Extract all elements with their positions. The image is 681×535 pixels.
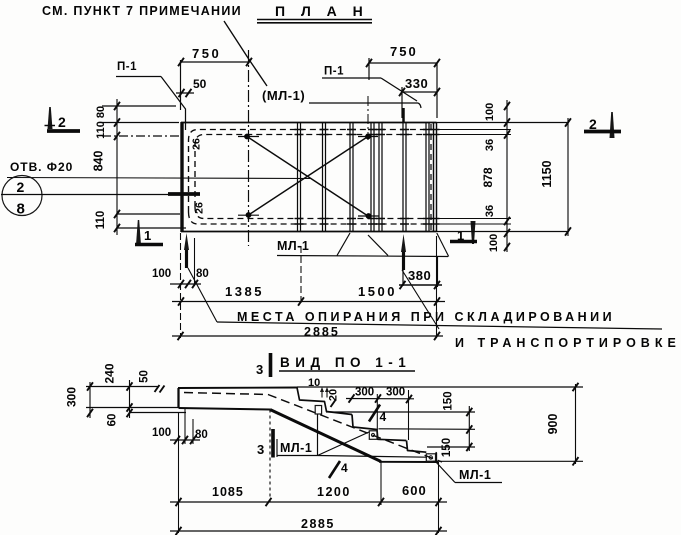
svg-text:4: 4 [380, 410, 387, 424]
svg-text:МЕСТА ОПИРАНИЯ ПРИ СКЛАДИРОВАН: МЕСТА ОПИРАНИЯ ПРИ СКЛАДИРОВАНИИ [237, 310, 615, 324]
svg-text:1: 1 [457, 228, 464, 243]
svg-text:1085: 1085 [212, 485, 244, 499]
svg-text:1500: 1500 [358, 284, 397, 299]
svg-text:1200: 1200 [317, 485, 351, 499]
svg-text:И ТРАНСПОРТИРОВКЕ: И ТРАНСПОРТИРОВКЕ [455, 336, 681, 350]
svg-text:(МЛ-1): (МЛ-1) [262, 88, 305, 103]
svg-text:26: 26 [194, 202, 206, 214]
svg-text:100: 100 [152, 268, 171, 280]
svg-text:600: 600 [402, 483, 427, 498]
svg-text:300: 300 [386, 387, 405, 399]
svg-text:150: 150 [443, 391, 455, 410]
svg-text:3: 3 [256, 362, 263, 377]
svg-text:20: 20 [328, 389, 340, 401]
svg-text:300: 300 [355, 387, 374, 399]
svg-text:1150: 1150 [540, 160, 554, 187]
svg-text:60: 60 [107, 414, 119, 427]
svg-text:МЛ-1: МЛ-1 [459, 468, 491, 482]
svg-text:36: 36 [484, 205, 496, 217]
svg-text:300: 300 [65, 387, 79, 407]
svg-text:840: 840 [92, 151, 106, 172]
svg-text:330: 330 [405, 76, 428, 91]
svg-text:П Л А Н: П Л А Н [275, 3, 369, 19]
svg-text:80: 80 [95, 106, 107, 118]
svg-text:ОТВ. Ф20: ОТВ. Ф20 [10, 160, 73, 174]
svg-text:2: 2 [58, 114, 66, 130]
svg-text:2885: 2885 [301, 517, 335, 531]
svg-text:СМ. ПУНКТ 7 ПРИМЕЧАНИИ: СМ. ПУНКТ 7 ПРИМЕЧАНИИ [42, 4, 242, 18]
svg-text:750: 750 [192, 46, 221, 61]
svg-text:110: 110 [95, 121, 107, 139]
svg-text:36: 36 [484, 139, 496, 151]
svg-text:240: 240 [103, 363, 117, 383]
svg-text:380: 380 [408, 268, 431, 283]
svg-text:2: 2 [17, 179, 25, 195]
svg-text:1385: 1385 [225, 284, 264, 299]
svg-text:1: 1 [144, 228, 151, 243]
svg-text:П-1: П-1 [324, 66, 344, 78]
svg-text:8: 8 [17, 201, 25, 218]
svg-text:2: 2 [589, 116, 597, 132]
svg-text:ВИД ПО 1-1: ВИД ПО 1-1 [280, 355, 411, 370]
svg-text:МЛ-1: МЛ-1 [277, 239, 309, 253]
svg-text:100: 100 [488, 234, 500, 252]
svg-text:750: 750 [390, 44, 418, 59]
svg-text:80: 80 [196, 268, 209, 280]
svg-text:50: 50 [139, 370, 151, 383]
svg-text:110: 110 [95, 211, 107, 230]
svg-text:100: 100 [484, 103, 496, 121]
svg-text:100: 100 [152, 427, 171, 439]
svg-text:МЛ-1: МЛ-1 [280, 441, 312, 455]
svg-text:П-1: П-1 [117, 61, 137, 73]
svg-text:80: 80 [195, 429, 208, 441]
svg-text:878: 878 [481, 167, 495, 187]
svg-text:2885: 2885 [304, 325, 340, 339]
svg-text:3: 3 [257, 442, 264, 457]
svg-text:4: 4 [341, 461, 348, 475]
svg-text:26: 26 [191, 138, 203, 150]
svg-text:900: 900 [546, 414, 560, 435]
svg-text:50: 50 [193, 77, 207, 91]
